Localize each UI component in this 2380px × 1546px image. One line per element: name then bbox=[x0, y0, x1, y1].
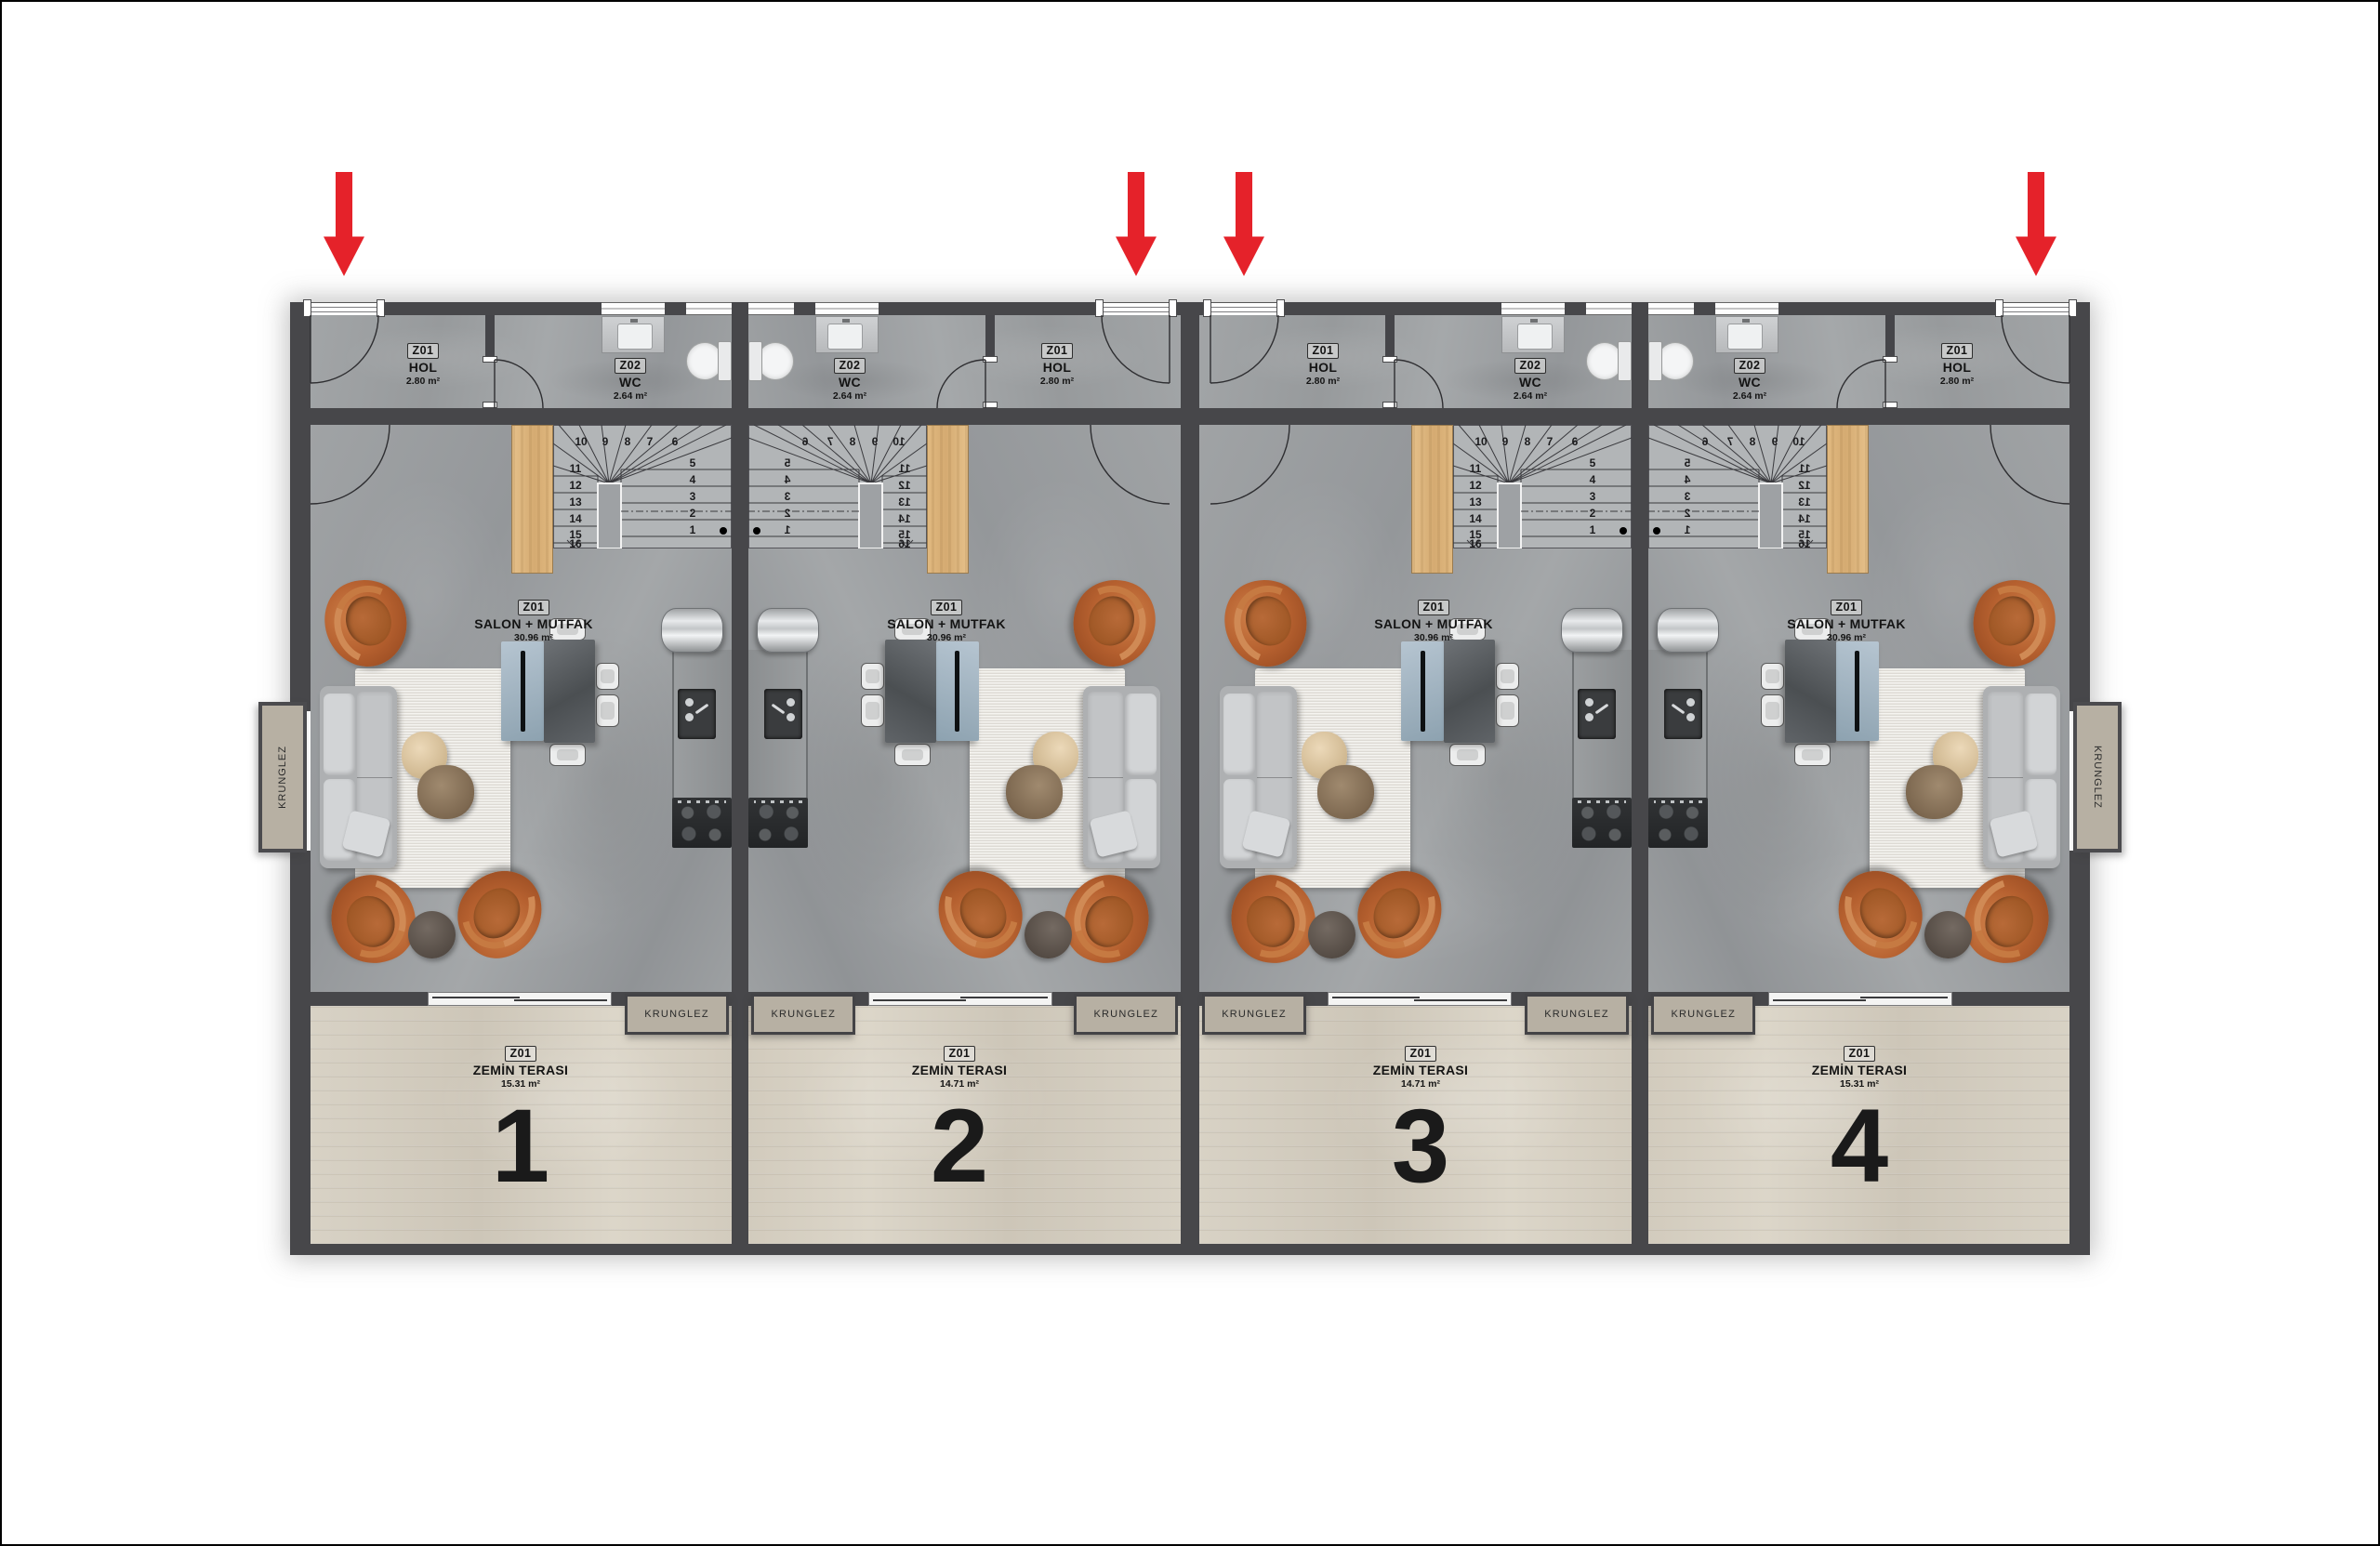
krunglez-box-label: KRUNGLEZ bbox=[1544, 1009, 1609, 1020]
svg-text:16: 16 bbox=[898, 537, 911, 548]
svg-text:11: 11 bbox=[898, 462, 910, 475]
svg-text:11: 11 bbox=[1798, 462, 1810, 475]
svg-text:5: 5 bbox=[690, 456, 696, 469]
svg-text:16: 16 bbox=[1469, 537, 1482, 548]
svg-text:5: 5 bbox=[784, 456, 790, 469]
kitchen-sink bbox=[1664, 689, 1702, 739]
dining-table bbox=[1785, 640, 1836, 743]
entry-door-opening bbox=[2002, 302, 2069, 315]
dining-chair bbox=[596, 694, 619, 727]
unit-number: 1 bbox=[442, 1094, 600, 1198]
toilet-bowl bbox=[1657, 342, 1694, 380]
dining-chair bbox=[549, 618, 586, 641]
sofa bbox=[1983, 686, 2060, 868]
unit-number: 4 bbox=[1780, 1094, 1938, 1198]
svg-text:8: 8 bbox=[1525, 435, 1531, 448]
krunglez-bay: KRUNGLEZ bbox=[2073, 702, 2122, 852]
krunglez-bay: KRUNGLEZ bbox=[258, 702, 307, 852]
stove bbox=[1648, 798, 1708, 848]
wc-window-2 bbox=[748, 302, 794, 315]
refrigerator bbox=[1561, 608, 1623, 653]
terrace-sliding-door bbox=[1328, 992, 1512, 1006]
stove bbox=[672, 798, 732, 848]
svg-text:4: 4 bbox=[690, 473, 696, 486]
svg-text:11: 11 bbox=[570, 462, 582, 475]
dining-table bbox=[1444, 640, 1495, 743]
dining-chair bbox=[549, 744, 586, 766]
entry-hall-floor bbox=[311, 315, 732, 408]
hol-wc-wall bbox=[985, 315, 995, 356]
svg-text:16: 16 bbox=[1798, 537, 1811, 548]
dining-chair bbox=[1761, 694, 1784, 727]
krunglez-box-right: KRUNGLEZ bbox=[625, 994, 729, 1035]
unit-2: 10987611121314151654321 KRUNGLEZ bbox=[740, 302, 1190, 1255]
svg-text:8: 8 bbox=[625, 435, 631, 448]
svg-text:1: 1 bbox=[784, 523, 790, 536]
stair-wood-panel bbox=[1411, 425, 1453, 574]
wc-door-jamb bbox=[1382, 356, 1397, 363]
sofa bbox=[320, 686, 397, 868]
svg-text:6: 6 bbox=[801, 435, 808, 448]
entry-door-opening bbox=[311, 302, 378, 315]
wc-door-jamb bbox=[1883, 402, 1897, 408]
stair-start-newel bbox=[1620, 527, 1627, 535]
hol-wc-wall bbox=[1885, 315, 1895, 356]
console-table bbox=[501, 641, 544, 741]
svg-text:7: 7 bbox=[826, 435, 833, 448]
svg-text:4: 4 bbox=[1684, 473, 1690, 486]
wc-window bbox=[1715, 302, 1778, 315]
unit-number: 3 bbox=[1342, 1094, 1500, 1198]
svg-text:1: 1 bbox=[690, 523, 696, 536]
side-table bbox=[1308, 911, 1355, 958]
svg-text:6: 6 bbox=[1572, 435, 1579, 448]
stair-start-newel bbox=[720, 527, 727, 535]
wc-window bbox=[602, 302, 665, 315]
svg-text:3: 3 bbox=[1684, 490, 1690, 503]
entry-door-jamb bbox=[1276, 299, 1285, 317]
unit-3: 10987611121314151654321 KRUNGLEZ bbox=[1190, 302, 1640, 1255]
svg-text:9: 9 bbox=[602, 435, 609, 448]
krunglez-box-right: KRUNGLEZ bbox=[1525, 994, 1629, 1035]
stair-start-newel bbox=[1653, 527, 1660, 535]
entry-hall-floor bbox=[1648, 315, 2069, 408]
entrance-arrow bbox=[1223, 172, 1264, 276]
dining-table bbox=[885, 640, 936, 743]
wc-door-jamb bbox=[483, 402, 497, 408]
staircase: 10987611121314151654321 bbox=[1453, 425, 1632, 548]
floor-plan-canvas: KRUNGLEZ 10987611121314151654321 bbox=[0, 0, 2380, 1546]
console-table bbox=[1836, 641, 1879, 741]
dining-chair bbox=[861, 694, 884, 727]
stair-wood-panel bbox=[511, 425, 553, 574]
dining-chair bbox=[894, 744, 931, 766]
krunglez-box-left: KRUNGLEZ bbox=[1074, 994, 1178, 1035]
toilet-tank bbox=[718, 341, 732, 381]
svg-text:10: 10 bbox=[892, 435, 906, 448]
toilet-tank bbox=[748, 341, 762, 381]
console-table bbox=[936, 641, 979, 741]
svg-text:6: 6 bbox=[1701, 435, 1708, 448]
entrance-arrow bbox=[1116, 172, 1157, 276]
svg-text:10: 10 bbox=[1792, 435, 1805, 448]
wc-window-2 bbox=[686, 302, 732, 315]
krunglez-box-left: KRUNGLEZ bbox=[1202, 994, 1306, 1035]
krunglez-bay-label: KRUNGLEZ bbox=[2092, 746, 2103, 809]
toilet-tank bbox=[1648, 341, 1662, 381]
wc-door-jamb bbox=[983, 356, 998, 363]
wc-vanity bbox=[815, 316, 879, 353]
entry-hall-floor bbox=[748, 315, 1181, 408]
coffee-table-dark bbox=[417, 765, 474, 819]
staircase: 10987611121314151654321 bbox=[1648, 425, 1827, 548]
svg-text:2: 2 bbox=[1590, 507, 1596, 520]
wc-door-jamb bbox=[1382, 402, 1397, 408]
svg-text:12: 12 bbox=[569, 479, 582, 492]
svg-text:9: 9 bbox=[1502, 435, 1509, 448]
svg-text:16: 16 bbox=[569, 537, 582, 548]
coffee-table-dark bbox=[1006, 765, 1063, 819]
building: KRUNGLEZ 10987611121314151654321 bbox=[290, 302, 2090, 1255]
refrigerator bbox=[757, 608, 819, 653]
wc-vanity bbox=[1501, 316, 1565, 353]
svg-text:3: 3 bbox=[784, 490, 790, 503]
entry-door-jamb bbox=[1169, 299, 1177, 317]
sofa bbox=[1220, 686, 1297, 868]
stair-post bbox=[1759, 483, 1782, 548]
wc-window bbox=[1501, 302, 1565, 315]
stair-wood-panel bbox=[927, 425, 969, 574]
refrigerator bbox=[1657, 608, 1719, 653]
toilet bbox=[686, 339, 732, 381]
svg-text:13: 13 bbox=[569, 496, 582, 509]
dining-table bbox=[544, 640, 595, 743]
toilet bbox=[1586, 339, 1632, 381]
wc-door-jamb bbox=[1883, 356, 1897, 363]
terrace-sliding-door bbox=[1768, 992, 1952, 1006]
svg-text:4: 4 bbox=[1590, 473, 1596, 486]
unit-number: 2 bbox=[880, 1094, 1038, 1198]
svg-text:14: 14 bbox=[569, 512, 582, 525]
entry-door-jamb bbox=[1995, 299, 2003, 317]
svg-text:2: 2 bbox=[1684, 507, 1690, 520]
svg-text:14: 14 bbox=[898, 512, 911, 525]
side-table bbox=[1924, 911, 1972, 958]
krunglez-box-label: KRUNGLEZ bbox=[1093, 1009, 1158, 1020]
entrance-arrow bbox=[2016, 172, 2056, 276]
entry-hall-floor bbox=[1199, 315, 1632, 408]
stove bbox=[748, 798, 808, 848]
refrigerator bbox=[661, 608, 723, 653]
entry-door-opening bbox=[1102, 302, 1170, 315]
stair-wood-panel bbox=[1827, 425, 1869, 574]
entry-door-opening bbox=[1210, 302, 1278, 315]
wc-window-2 bbox=[1648, 302, 1694, 315]
dining-chair bbox=[1496, 663, 1519, 690]
svg-text:3: 3 bbox=[1590, 490, 1596, 503]
svg-text:7: 7 bbox=[1726, 435, 1733, 448]
stove bbox=[1572, 798, 1632, 848]
stair-post bbox=[859, 483, 882, 548]
hol-wc-wall bbox=[1385, 315, 1395, 356]
dining-chair bbox=[861, 663, 884, 690]
wc-vanity bbox=[602, 316, 665, 353]
dining-chair bbox=[1761, 663, 1784, 690]
dining-chair bbox=[1794, 744, 1831, 766]
toilet-tank bbox=[1618, 341, 1632, 381]
svg-text:4: 4 bbox=[784, 473, 790, 486]
terrace-sliding-door bbox=[868, 992, 1052, 1006]
side-table bbox=[1025, 911, 1072, 958]
entry-door-jamb bbox=[1203, 299, 1211, 317]
toilet-bowl bbox=[757, 342, 794, 380]
entry-door-jamb bbox=[2069, 299, 2077, 317]
svg-text:13: 13 bbox=[1798, 496, 1811, 509]
krunglez-box-label: KRUNGLEZ bbox=[1222, 1009, 1287, 1020]
svg-text:1: 1 bbox=[1684, 523, 1690, 536]
entry-door-jamb bbox=[303, 299, 311, 317]
entry-door-jamb bbox=[377, 299, 385, 317]
svg-text:5: 5 bbox=[1590, 456, 1596, 469]
toilet bbox=[1648, 339, 1694, 381]
svg-text:5: 5 bbox=[1684, 456, 1690, 469]
svg-text:7: 7 bbox=[647, 435, 654, 448]
svg-text:8: 8 bbox=[849, 435, 855, 448]
console-table bbox=[1401, 641, 1444, 741]
sofa bbox=[1083, 686, 1160, 868]
wc-window bbox=[815, 302, 879, 315]
wc-window-2 bbox=[1586, 302, 1632, 315]
svg-text:14: 14 bbox=[1798, 512, 1811, 525]
entrance-arrow bbox=[324, 172, 364, 276]
krunglez-box-label: KRUNGLEZ bbox=[1671, 1009, 1736, 1020]
svg-text:6: 6 bbox=[672, 435, 679, 448]
wc-door-jamb bbox=[483, 356, 497, 363]
svg-text:12: 12 bbox=[1469, 479, 1482, 492]
kitchen-sink bbox=[678, 689, 716, 739]
dining-chair bbox=[1496, 694, 1519, 727]
krunglez-bay-label: KRUNGLEZ bbox=[277, 746, 288, 809]
svg-text:12: 12 bbox=[1798, 479, 1811, 492]
svg-text:7: 7 bbox=[1547, 435, 1554, 448]
svg-text:3: 3 bbox=[690, 490, 696, 503]
svg-text:9: 9 bbox=[1771, 435, 1778, 448]
svg-text:13: 13 bbox=[898, 496, 911, 509]
terrace-sliding-door bbox=[428, 992, 612, 1006]
wc-vanity bbox=[1715, 316, 1778, 353]
dining-chair bbox=[596, 663, 619, 690]
unit-4: KRUNGLEZ 10987611121314151654321 bbox=[1640, 302, 2090, 1255]
svg-text:13: 13 bbox=[1469, 496, 1482, 509]
krunglez-box-right: KRUNGLEZ bbox=[751, 994, 855, 1035]
wc-door-jamb bbox=[983, 402, 998, 408]
svg-text:14: 14 bbox=[1469, 512, 1482, 525]
svg-text:11: 11 bbox=[1470, 462, 1482, 475]
svg-text:9: 9 bbox=[871, 435, 878, 448]
coffee-table-dark bbox=[1906, 765, 1963, 819]
svg-text:1: 1 bbox=[1590, 523, 1596, 536]
staircase: 10987611121314151654321 bbox=[553, 425, 732, 548]
svg-text:2: 2 bbox=[690, 507, 696, 520]
side-table bbox=[408, 911, 456, 958]
dining-chair bbox=[1449, 618, 1486, 641]
svg-text:10: 10 bbox=[575, 435, 588, 448]
krunglez-box-right: KRUNGLEZ bbox=[1651, 994, 1755, 1035]
kitchen-sink bbox=[764, 689, 802, 739]
krunglez-box-label: KRUNGLEZ bbox=[644, 1009, 709, 1020]
svg-text:8: 8 bbox=[1749, 435, 1755, 448]
hol-wc-wall bbox=[485, 315, 495, 356]
svg-text:12: 12 bbox=[898, 479, 911, 492]
stair-start-newel bbox=[753, 527, 760, 535]
unit-1: KRUNGLEZ 10987611121314151654321 bbox=[290, 302, 740, 1255]
entry-door-jamb bbox=[1095, 299, 1104, 317]
svg-text:10: 10 bbox=[1474, 435, 1487, 448]
svg-text:2: 2 bbox=[784, 507, 790, 520]
dining-chair bbox=[1449, 744, 1486, 766]
kitchen-sink bbox=[1578, 689, 1616, 739]
staircase: 10987611121314151654321 bbox=[748, 425, 927, 548]
coffee-table-dark bbox=[1317, 765, 1374, 819]
stair-post bbox=[1498, 483, 1521, 548]
krunglez-box-label: KRUNGLEZ bbox=[771, 1009, 836, 1020]
stair-post bbox=[598, 483, 621, 548]
dining-chair bbox=[894, 618, 931, 641]
toilet bbox=[748, 339, 794, 381]
dining-chair bbox=[1794, 618, 1831, 641]
